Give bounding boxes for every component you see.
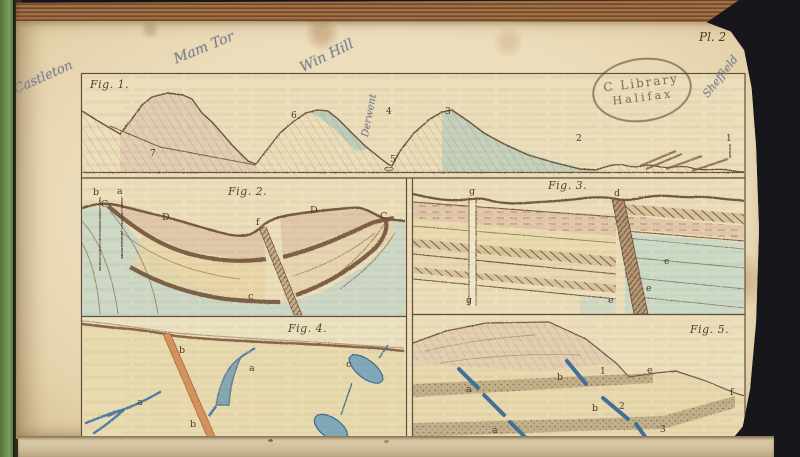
open-book-photo: Fig. 1. 7 6 4 5 3 2 1 <box>0 0 800 457</box>
plate-number: Pl. 2 <box>699 30 726 44</box>
book-spine <box>0 0 14 457</box>
handwriting-win-hill: Win Hill <box>297 36 356 76</box>
engraved-plate: Fig. 1. 7 6 4 5 3 2 1 <box>80 71 748 444</box>
handwriting-castleton: Castleton <box>12 58 76 97</box>
plate-page: Fig. 1. 7 6 4 5 3 2 1 <box>16 21 762 439</box>
handwriting-mam-tor: Mam Tor <box>171 29 236 68</box>
plate-figure: Fig. 1. 7 6 4 5 3 2 1 <box>80 71 748 444</box>
page-edges-bottom <box>18 436 774 457</box>
